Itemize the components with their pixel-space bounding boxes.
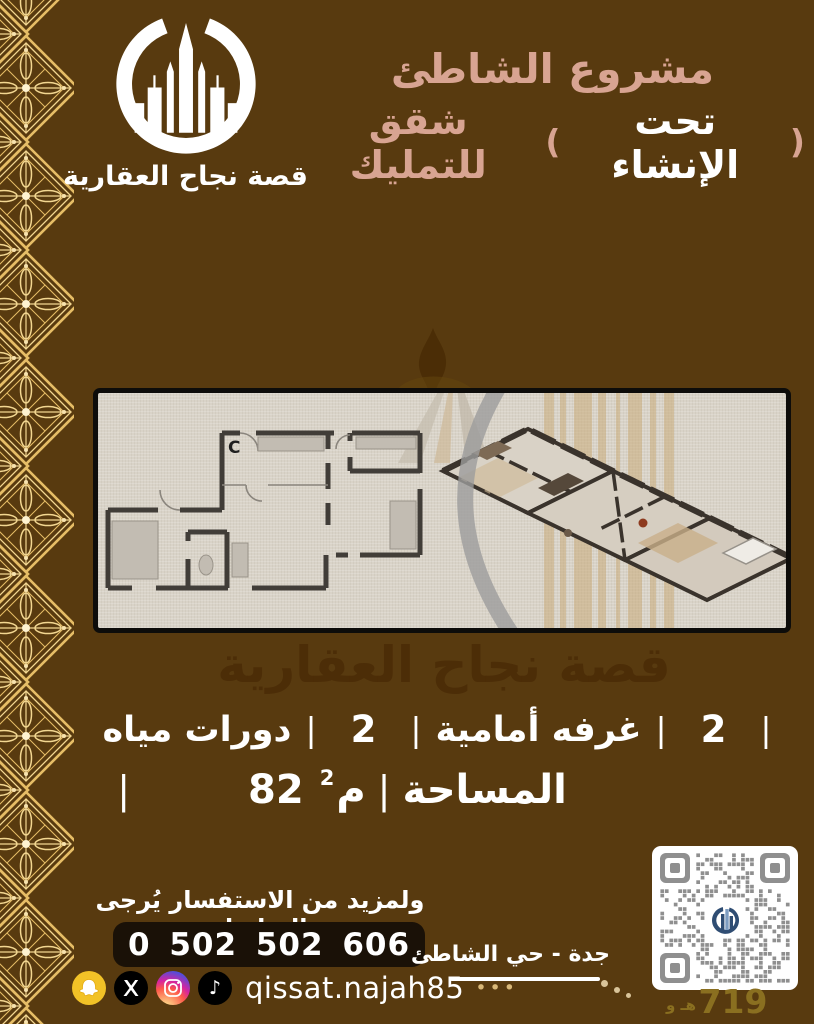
project-title: مشروع الشاطئ <box>300 46 805 93</box>
brand-logo: قصة نجاح العقارية <box>58 10 313 192</box>
separator: | <box>305 710 316 749</box>
spec-row-area: المساحة | م2 82 | <box>0 767 722 813</box>
watermark-wordmark: قصة نجاح العقارية <box>88 636 800 694</box>
separator: | <box>656 710 667 749</box>
trail-dot <box>626 993 631 998</box>
block-label: C <box>228 438 240 458</box>
baths-label: دورات مياه <box>103 710 292 750</box>
offer-text: شقق للتمليك <box>300 99 536 187</box>
construction-status: تحت الإنشاء <box>569 99 780 187</box>
header: مشروع الشاطئ شقق للتمليك ( تحت الإنشاء ) <box>300 46 805 187</box>
floorplan-image: C <box>93 388 791 633</box>
instagram-icon[interactable] <box>156 971 190 1005</box>
brand-name: قصة نجاح العقارية <box>58 162 313 192</box>
area-label: المساحة <box>402 767 566 813</box>
spire-watermark <box>385 326 485 390</box>
spec-row-rooms-baths: | 2 | غرفه أمامية | 2 | دورات مياه <box>57 708 814 751</box>
separator: | <box>378 768 391 812</box>
location: جدة - حي الشاطئ <box>446 934 620 974</box>
baths-count: 2 <box>351 708 377 751</box>
qr-center-logo <box>705 898 745 938</box>
phone-number-button[interactable]: 0 502 502 606 <box>113 922 425 967</box>
rooms-label: غرفه أمامية <box>435 710 641 750</box>
music-note-glyph: ♪ <box>209 977 221 999</box>
separator: | <box>760 710 771 749</box>
unit-specs: | 2 | غرفه أمامية | 2 | دورات مياه المسا… <box>57 708 814 813</box>
plan-3d <box>443 429 786 600</box>
paren-open: ( <box>545 122 560 161</box>
poster: قصة نجاح العقارية مشروع الشاطئ شقق للتمل… <box>0 0 814 1024</box>
offer-line: شقق للتمليك ( تحت الإنشاء ) <box>300 99 805 187</box>
rooms-count: 2 <box>701 708 727 751</box>
trail-dot <box>614 987 620 993</box>
tiktok-icon[interactable]: ♪ <box>198 971 232 1005</box>
location-text: جدة - حي الشاطئ <box>411 942 610 967</box>
location-underline <box>450 977 600 981</box>
phone-number: 0 502 502 606 <box>128 927 410 963</box>
x-icon[interactable] <box>114 971 148 1005</box>
separator: | <box>410 710 421 749</box>
area-value: 82 <box>248 767 304 813</box>
trail-dot <box>601 980 608 987</box>
area-unit: م2 <box>322 767 366 813</box>
paren-close: ) <box>790 122 805 161</box>
qr-code[interactable] <box>652 846 798 990</box>
qr-number: 719 <box>698 982 768 1021</box>
qr-side-label: هـ و <box>658 996 704 1014</box>
snapchat-icon[interactable] <box>72 971 106 1005</box>
social-handle[interactable]: qissat.najah85 <box>245 971 464 1005</box>
crescent-skyline-icon <box>98 10 274 158</box>
social-row: ♪ qissat.najah85 ••• <box>72 968 518 1008</box>
separator: | <box>117 768 130 812</box>
